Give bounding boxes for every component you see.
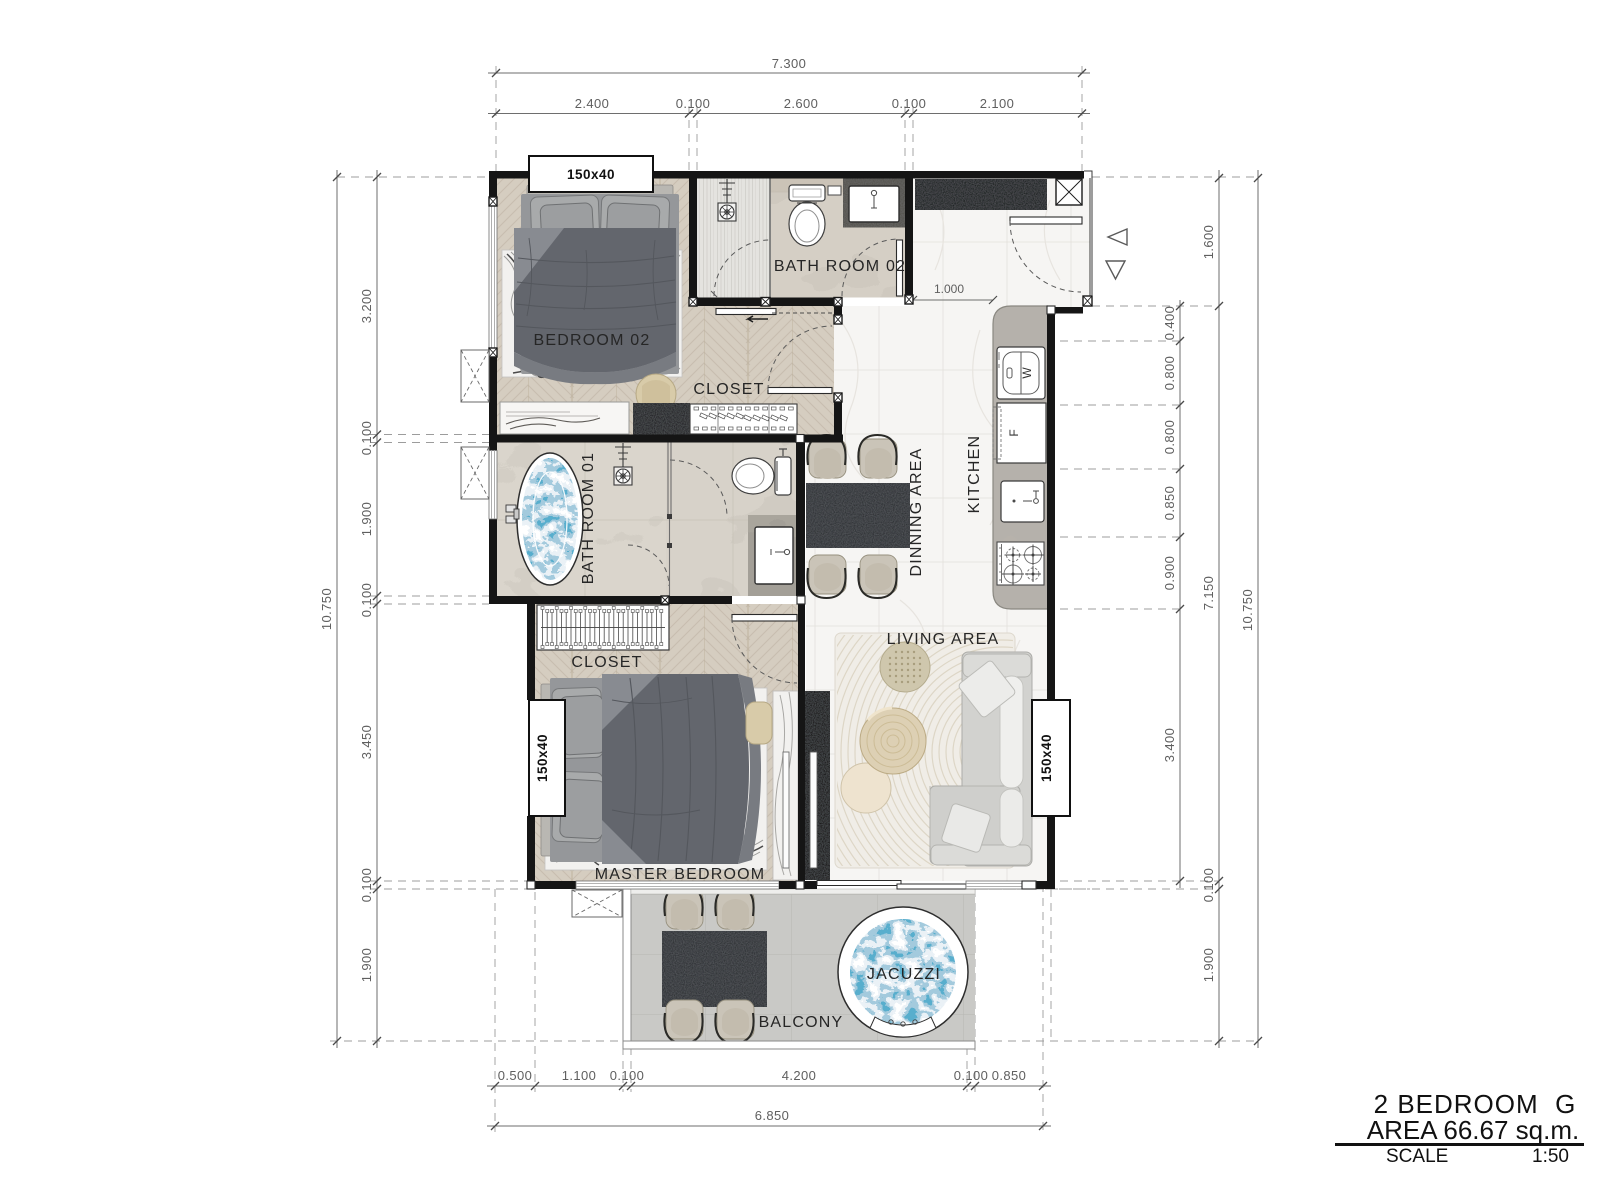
svg-text:1.100: 1.100 [562, 1068, 597, 1083]
svg-text:0.400: 0.400 [1162, 306, 1177, 341]
svg-text:10.750: 10.750 [1240, 589, 1255, 631]
svg-text:0.900: 0.900 [1162, 556, 1177, 591]
svg-text:4.200: 4.200 [782, 1068, 817, 1083]
svg-text:150x40: 150x40 [567, 167, 615, 182]
svg-text:7.300: 7.300 [772, 56, 807, 71]
svg-text:150x40: 150x40 [535, 734, 550, 782]
svg-text:0.100: 0.100 [359, 421, 374, 456]
svg-text:3.400: 3.400 [1162, 728, 1177, 763]
svg-text:3.450: 3.450 [359, 725, 374, 760]
svg-text:0.800: 0.800 [1162, 356, 1177, 391]
svg-text:BALCONY: BALCONY [759, 1014, 844, 1031]
svg-text:2.600: 2.600 [784, 96, 819, 111]
svg-text:CLOSET: CLOSET [571, 654, 642, 671]
svg-text:BATH ROOM 02: BATH ROOM 02 [774, 258, 906, 275]
svg-text:150x40: 150x40 [1039, 734, 1054, 782]
svg-text:1.900: 1.900 [1201, 948, 1216, 983]
svg-text:LIVING AREA: LIVING AREA [887, 631, 1000, 648]
svg-text:2.400: 2.400 [575, 96, 610, 111]
svg-text:KITCHEN: KITCHEN [966, 435, 983, 514]
svg-text:0.100: 0.100 [892, 96, 927, 111]
svg-text:1.000: 1.000 [934, 282, 964, 296]
svg-text:0.100: 0.100 [676, 96, 711, 111]
svg-text:1.900: 1.900 [359, 502, 374, 537]
svg-text:0.800: 0.800 [1162, 420, 1177, 455]
svg-text:7.150: 7.150 [1201, 576, 1216, 611]
svg-text:0.100: 0.100 [610, 1068, 645, 1083]
svg-text:1:50: 1:50 [1532, 1146, 1569, 1167]
svg-text:0.100: 0.100 [1201, 868, 1216, 903]
svg-text:0.500: 0.500 [498, 1068, 533, 1083]
svg-text:SCALE: SCALE [1386, 1146, 1448, 1167]
svg-text:6.850: 6.850 [755, 1108, 790, 1123]
svg-text:DINNING AREA: DINNING AREA [908, 447, 925, 576]
svg-text:1.600: 1.600 [1201, 225, 1216, 260]
svg-text:0.100: 0.100 [359, 868, 374, 903]
svg-text:MASTER BEDROOM: MASTER BEDROOM [595, 866, 766, 883]
svg-text:BEDROOM 02: BEDROOM 02 [534, 332, 651, 349]
svg-text:0.100: 0.100 [359, 583, 374, 618]
svg-text:0.850: 0.850 [992, 1068, 1027, 1083]
svg-text:AREA 66.67 sq.m.: AREA 66.67 sq.m. [1367, 1115, 1579, 1145]
svg-text:2.100: 2.100 [980, 96, 1015, 111]
svg-text:CLOSET: CLOSET [693, 381, 764, 398]
svg-text:F: F [1007, 429, 1021, 436]
svg-text:10.750: 10.750 [319, 588, 334, 630]
svg-text:JACUZZI: JACUZZI [867, 966, 941, 983]
svg-text:0.850: 0.850 [1162, 486, 1177, 521]
svg-text:3.200: 3.200 [359, 289, 374, 324]
svg-text:BATH ROOM 01: BATH ROOM 01 [580, 452, 597, 584]
svg-text:1.900: 1.900 [359, 948, 374, 983]
svg-text:0.100: 0.100 [954, 1068, 989, 1083]
svg-text:W: W [1020, 367, 1034, 379]
